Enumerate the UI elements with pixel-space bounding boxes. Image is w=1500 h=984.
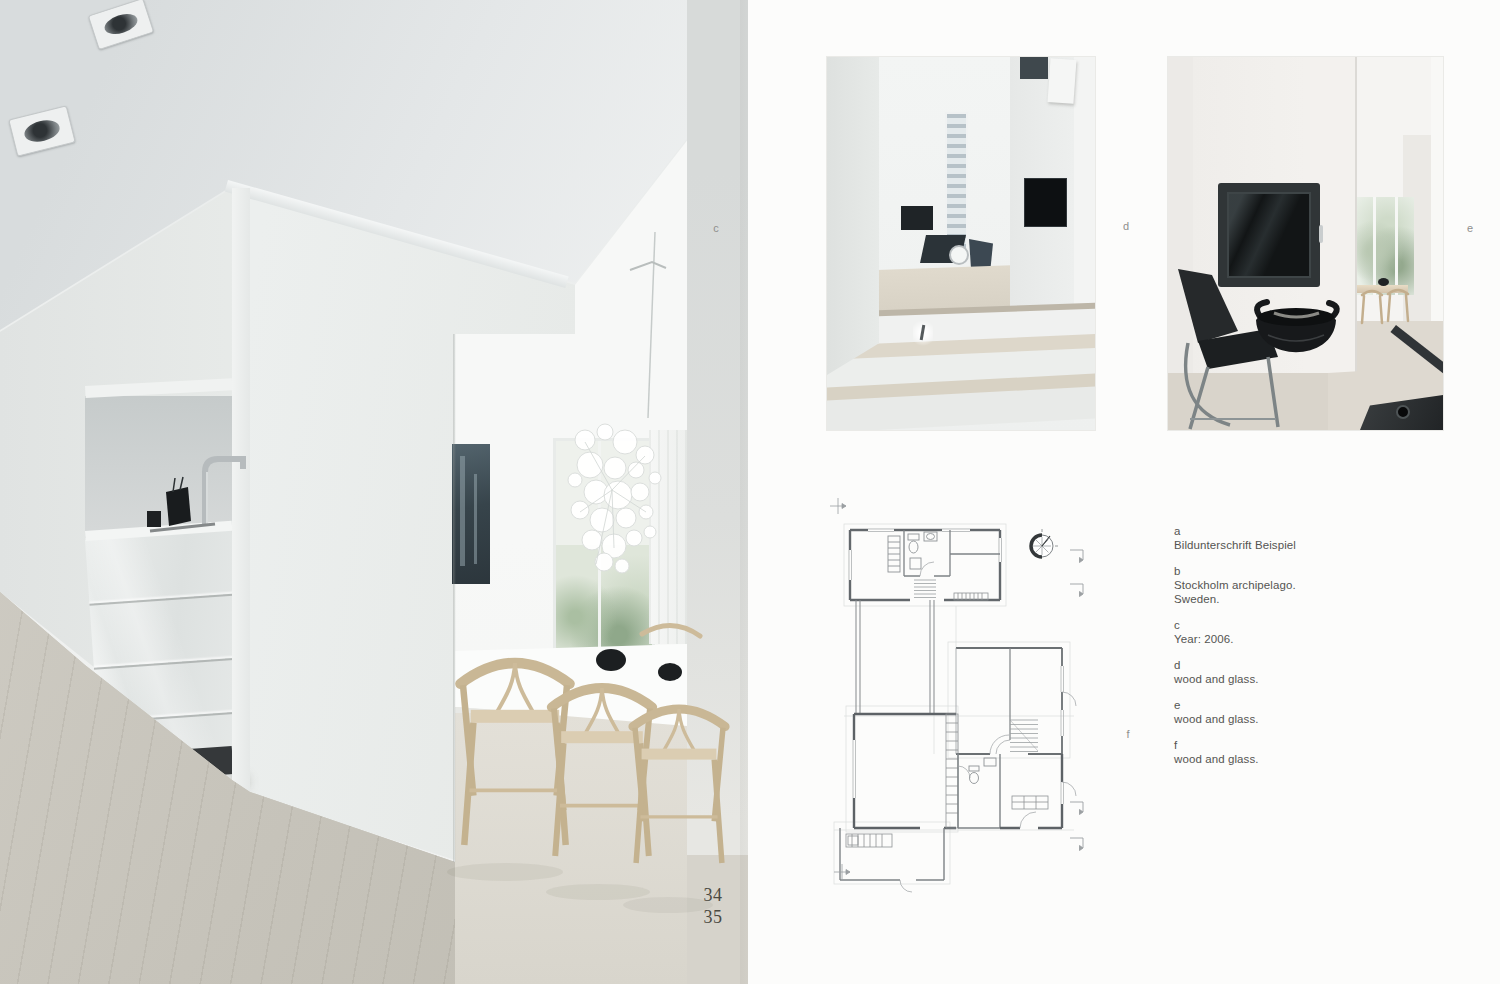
knife-block xyxy=(166,487,191,526)
tv-screen xyxy=(901,206,933,230)
photo-marker-c: c xyxy=(706,222,726,234)
pillar-side-face xyxy=(1074,57,1095,307)
caption-c: c Year: 2006. xyxy=(1174,618,1374,646)
left-page-photo: 34 35 c xyxy=(0,0,748,984)
caption-b: b Stockholm archipelago. Sweden. xyxy=(1174,564,1374,606)
door-arc-annex xyxy=(900,880,912,892)
caption-letter-a: a xyxy=(1174,524,1374,538)
caption-letter-c: c xyxy=(1174,618,1374,632)
caption-text-d: wood and glass. xyxy=(1174,672,1374,686)
floor-plan-drawing xyxy=(824,496,1104,896)
folio-right: 35 xyxy=(688,906,738,928)
caption-a: a Bildunterschrift Beispiel xyxy=(1174,524,1374,552)
black-cup xyxy=(147,511,161,527)
page-folio: 34 35 xyxy=(688,884,738,928)
caption-text-f: wood and glass. xyxy=(1174,752,1374,766)
table-knob xyxy=(1396,405,1410,419)
photo-d-stairs-fireplace xyxy=(827,57,1095,430)
caption-column: a Bildunterschrift Beispiel b Stockholm … xyxy=(1174,524,1374,778)
caption-letter-e: e xyxy=(1174,698,1374,712)
round-side-table xyxy=(949,245,969,265)
paper-pendant-lamp xyxy=(568,424,661,573)
lower-right-walls xyxy=(1000,754,1062,828)
mid-block-walls xyxy=(956,648,1062,754)
black-vase xyxy=(596,649,626,671)
stove-glass-door xyxy=(1227,192,1311,278)
door-arc xyxy=(920,562,934,576)
ceiling-slot xyxy=(1020,57,1048,79)
kitchen-counter-symbol xyxy=(846,834,892,847)
right-page: d xyxy=(748,0,1500,984)
north-arrow-icon xyxy=(1031,529,1058,557)
bench-symbol xyxy=(1012,796,1048,809)
floor-plan xyxy=(824,496,1104,896)
stairs-lower xyxy=(1010,720,1038,752)
caption-text-a: Bildunterschrift Beispiel xyxy=(1174,538,1374,552)
caption-letter-d: d xyxy=(1174,658,1374,672)
book-spread: 34 35 c xyxy=(0,0,1500,984)
left-brick-wall-d xyxy=(827,57,879,375)
photo-marker-e: e xyxy=(1460,222,1480,234)
section-markers xyxy=(1070,550,1083,851)
caption-text-b2: Sweden. xyxy=(1174,592,1374,606)
caption-text-b1: Stockholm archipelago. xyxy=(1174,578,1374,592)
stairs-upper xyxy=(914,580,936,598)
photo-marker-f: f xyxy=(1118,728,1138,740)
window-mullion xyxy=(1373,197,1376,295)
caption-d: d wood and glass. xyxy=(1174,658,1374,686)
caption-e: e wood and glass. xyxy=(1174,698,1374,726)
wishbone-chair xyxy=(460,663,569,845)
caption-letter-f: f xyxy=(1174,738,1374,752)
left-photo-overlay xyxy=(0,0,748,984)
caption-f: f wood and glass. xyxy=(1174,738,1374,766)
construction-lines xyxy=(834,524,1074,884)
corridor-walls xyxy=(856,600,934,714)
wishbone-chair-far xyxy=(642,625,700,636)
stove-handle xyxy=(1319,225,1323,243)
fixtures-upper xyxy=(888,532,937,572)
bathroom-fixtures xyxy=(969,758,996,784)
bathroom-walls xyxy=(958,754,1000,828)
black-vase xyxy=(658,663,682,681)
kitchen-faucet-icon xyxy=(205,459,243,524)
window-mullion xyxy=(1395,197,1398,295)
lower-left-walls xyxy=(854,714,956,828)
folio-left: 34 xyxy=(688,884,738,906)
caption-text-c: Year: 2006. xyxy=(1174,632,1374,646)
photo-e-stove-lounge xyxy=(1168,57,1443,430)
rubber-basket xyxy=(1248,295,1344,383)
pendant-cord xyxy=(648,232,655,418)
door-arcs-mid xyxy=(990,735,1010,754)
inset-fireplace xyxy=(1024,178,1067,227)
caption-letter-b: b xyxy=(1174,564,1374,578)
white-panel xyxy=(1047,58,1076,104)
datum-crosses xyxy=(830,498,850,880)
photo-marker-d: d xyxy=(1116,220,1136,232)
caption-text-e: wood and glass. xyxy=(1174,712,1374,726)
